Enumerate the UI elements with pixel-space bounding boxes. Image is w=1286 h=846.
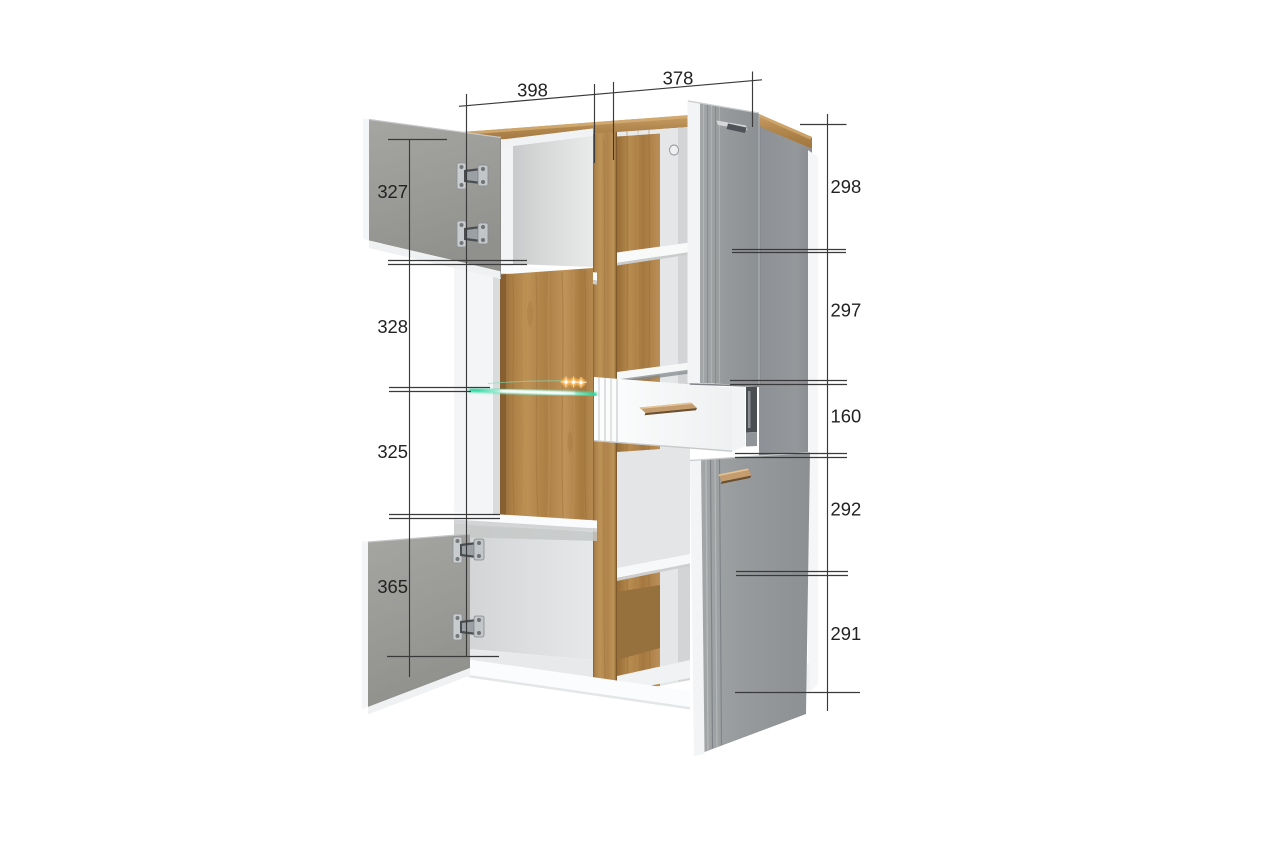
svg-text:298: 298 [831,176,862,197]
svg-text:291: 291 [831,623,862,644]
svg-text:292: 292 [831,499,862,520]
svg-text:378: 378 [663,68,694,89]
svg-text:365: 365 [377,576,408,597]
svg-text:327: 327 [377,181,408,202]
svg-text:297: 297 [831,300,862,321]
svg-text:325: 325 [377,441,408,462]
svg-text:160: 160 [831,406,862,427]
svg-text:328: 328 [377,316,408,337]
svg-text:398: 398 [517,79,548,100]
